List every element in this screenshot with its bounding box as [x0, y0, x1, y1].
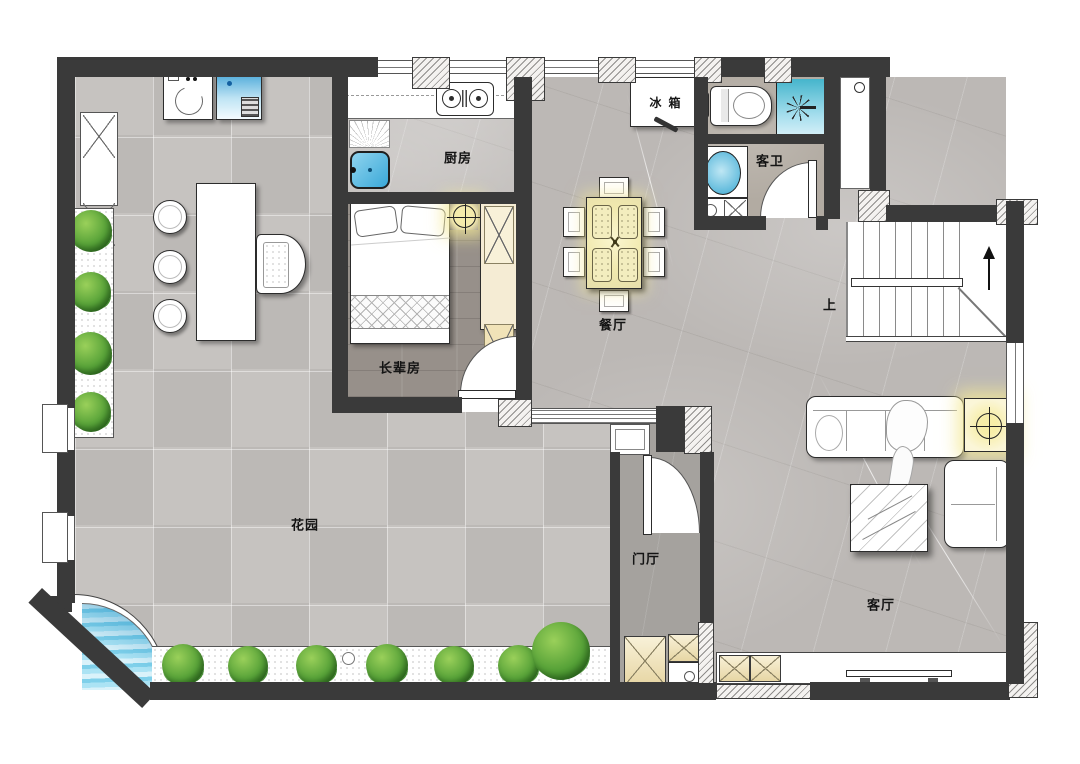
- stair-handrail: [851, 278, 963, 287]
- stairs-up-label: 上: [823, 295, 837, 314]
- plant: [366, 644, 408, 686]
- dining-chair: [643, 207, 665, 237]
- entry-sidelight-frame: [610, 424, 650, 455]
- bed: [350, 202, 450, 344]
- room-label-garden: 花园: [291, 515, 319, 534]
- wall: [150, 682, 716, 700]
- faucet-icon: [227, 81, 232, 86]
- shaft-circle-icon: [854, 82, 865, 93]
- placemat: [618, 205, 638, 239]
- room-label-living: 客厅: [867, 595, 895, 614]
- wall: [1006, 423, 1024, 684]
- column: [764, 57, 792, 83]
- plant: [69, 332, 112, 375]
- garden-table: [196, 183, 256, 341]
- wall: [810, 682, 1010, 700]
- window: [450, 60, 508, 74]
- elder-room-door-leaf: [458, 390, 516, 399]
- dining-table: [586, 197, 642, 289]
- room-label-kitchen: 厨房: [444, 148, 472, 167]
- refrigerator: 冰箱: [630, 77, 700, 127]
- cushion: [815, 415, 843, 451]
- window: [545, 60, 600, 74]
- plant: [296, 645, 337, 686]
- console-cabinet: [750, 655, 781, 682]
- shoe-cabinet: [668, 634, 700, 662]
- wardrobe: [480, 202, 518, 330]
- garden-armchair: [256, 234, 306, 294]
- coffee-table: [850, 484, 928, 552]
- staircase: [846, 222, 1006, 338]
- dining-chair: [563, 207, 585, 237]
- wall: [694, 216, 766, 230]
- plant: [70, 210, 112, 252]
- stair-up-arrow: [983, 246, 995, 290]
- wall: [332, 57, 348, 413]
- wall: [722, 57, 766, 77]
- garden-pot: [342, 652, 355, 665]
- wall: [610, 452, 620, 684]
- refrigerator-label: 冰箱: [642, 94, 687, 111]
- room-label-dining: 餐厅: [599, 315, 627, 334]
- garden-storage-cabinet: [80, 112, 118, 206]
- plant: [162, 644, 204, 686]
- duct-shaft: [840, 77, 870, 189]
- bath-door-leaf: [808, 160, 817, 218]
- wall: [700, 452, 714, 624]
- wall: [57, 57, 378, 77]
- sliding-door: [532, 408, 658, 424]
- dining-chair: [563, 247, 585, 277]
- entry-door-leaf: [643, 455, 652, 535]
- kitchen-sink: [350, 151, 390, 189]
- dining-chair: [599, 177, 629, 199]
- floor-lamp-icon: [976, 413, 1002, 439]
- placemat: [592, 248, 612, 282]
- washer-drum-icon: [170, 82, 207, 119]
- column: [684, 406, 712, 454]
- wall: [656, 406, 684, 452]
- bed-runner: [351, 295, 449, 329]
- wall: [870, 57, 886, 193]
- wall: [516, 195, 532, 427]
- bath-divider-wall: [700, 134, 828, 144]
- window: [378, 60, 415, 74]
- placemat: [618, 248, 638, 282]
- column: [698, 622, 714, 684]
- laundry-basin: [216, 72, 262, 120]
- pillow: [353, 205, 398, 238]
- plant: [434, 646, 474, 686]
- console-cabinet: [719, 655, 750, 682]
- dining-chair: [643, 247, 665, 277]
- pillow: [400, 205, 446, 237]
- wall: [694, 77, 708, 227]
- wall: [332, 397, 462, 413]
- window: [1006, 343, 1024, 423]
- placemat: [592, 205, 612, 239]
- shoe-cabinet: [624, 636, 666, 686]
- tv: [846, 670, 952, 677]
- column: [412, 57, 450, 89]
- room-label-foyer: 门厅: [632, 549, 660, 568]
- plant: [71, 272, 111, 312]
- wall: [514, 77, 532, 197]
- washbasin: [705, 151, 741, 195]
- room-label-elder-room: 长辈房: [379, 358, 421, 377]
- sofa-main: [806, 396, 964, 458]
- tree-large: [532, 622, 590, 680]
- plant: [71, 392, 111, 432]
- washboard-icon: [241, 97, 259, 117]
- garden-stool: [153, 299, 187, 333]
- room-label-guest-bath: 客卫: [756, 151, 784, 170]
- column: [498, 399, 532, 427]
- column: [716, 684, 812, 699]
- stair-diagonal: [958, 287, 1008, 338]
- stair-landing-edge: [846, 336, 1006, 342]
- sofa-loveseat: [944, 460, 1010, 548]
- garden-stool: [153, 250, 187, 284]
- centerpiece-plant-icon: [609, 236, 621, 248]
- window: [636, 60, 694, 74]
- wall: [824, 57, 840, 219]
- ceiling-lamp-icon: [453, 205, 476, 228]
- wall: [1006, 201, 1024, 343]
- dining-chair: [599, 290, 629, 312]
- column: [598, 57, 636, 83]
- garden-stool: [153, 200, 187, 234]
- washing-machine: [163, 72, 213, 120]
- floor-plan: 冰箱: [0, 0, 1080, 764]
- window-sill: [42, 512, 68, 563]
- wall: [886, 205, 1008, 222]
- plant: [228, 646, 268, 686]
- toilet: [710, 86, 772, 126]
- window-sill: [42, 404, 68, 453]
- wall: [332, 192, 532, 204]
- dish-rack: [349, 120, 390, 148]
